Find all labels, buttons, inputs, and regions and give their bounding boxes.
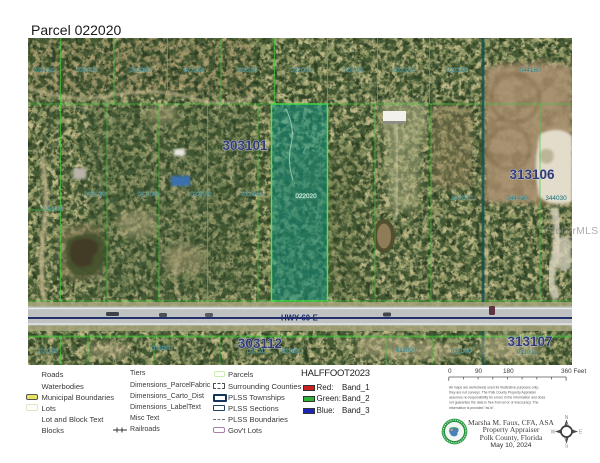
svg-text:HWY-60-E: HWY-60-E	[281, 314, 318, 323]
svg-text:024130: 024130	[33, 67, 55, 74]
svg-text:011050: 011050	[37, 348, 58, 355]
svg-text:313106: 313106	[509, 167, 555, 182]
svg-text:044160: 044160	[519, 67, 541, 74]
svg-text:022020: 022020	[295, 193, 317, 200]
svg-text:313107: 313107	[507, 334, 552, 349]
svg-text:022040: 022040	[241, 191, 263, 198]
svg-text:022130: 022130	[236, 67, 258, 74]
svg-text:022120: 022120	[393, 67, 415, 74]
svg-text:011020: 011020	[282, 348, 303, 355]
svg-text:011011: 011011	[517, 349, 538, 356]
svg-text:022160: 022160	[183, 67, 205, 74]
svg-text:022050: 022050	[342, 67, 364, 74]
svg-text:S: S	[565, 444, 569, 450]
svg-text:011080: 011080	[451, 348, 472, 355]
svg-text:022090: 022090	[129, 67, 151, 74]
svg-text:303112: 303112	[238, 336, 282, 351]
svg-text:024180: 024180	[42, 206, 64, 213]
svg-text:W: W	[551, 429, 556, 435]
svg-text:022070: 022070	[451, 195, 473, 202]
svg-text:022060: 022060	[290, 67, 312, 74]
svg-text:344030: 344030	[545, 195, 567, 202]
svg-text:303101: 303101	[222, 138, 268, 153]
svg-text:022100: 022100	[76, 67, 98, 74]
svg-text:011090: 011090	[396, 347, 417, 354]
svg-text:344010: 344010	[506, 195, 528, 202]
svg-text:022010: 022010	[84, 191, 106, 198]
svg-text:011060: 011060	[152, 345, 173, 352]
svg-text:022190: 022190	[137, 191, 159, 198]
svg-text:E: E	[579, 429, 583, 435]
svg-text:022140: 022140	[446, 67, 468, 74]
svg-text:N: N	[565, 415, 569, 421]
svg-text:022180: 022180	[190, 191, 212, 198]
